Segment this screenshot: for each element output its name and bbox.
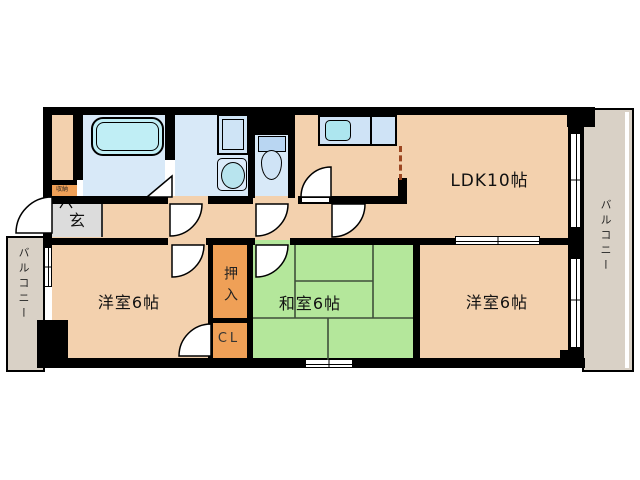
wall-toilet-kitchen: [288, 107, 295, 198]
door-entrance: [16, 197, 52, 233]
label-balcony-left: バルコニー: [15, 247, 31, 359]
wall-corner-bl: [37, 320, 68, 360]
duct-space: [52, 115, 73, 182]
window-japanese-bottom: [305, 359, 353, 368]
washing-machine-pan-icon: [217, 114, 249, 155]
floor-plan: LDK10帖 洋室6帖 和室6帖 洋室6帖 押入 CL 玄 収納 バルコニー バ…: [0, 0, 640, 480]
wall-rooms-top-c: [290, 238, 455, 245]
label-western1: 洋室6帖: [69, 289, 189, 313]
window-western2-balcony: [570, 258, 581, 348]
label-oshiire: 押入: [216, 254, 244, 320]
open-partition-dashed: [399, 146, 402, 180]
label-balcony-right: バルコニー: [597, 199, 613, 311]
window-ldk-balcony: [570, 133, 581, 228]
wall-duct-right: [73, 107, 83, 180]
wall-rooms-top-a: [45, 238, 168, 245]
door-leaf: [301, 197, 330, 203]
wall-corridor-top-a: [52, 196, 168, 204]
washbasin-icon: [217, 158, 247, 191]
label-genkan: 玄: [52, 207, 102, 231]
wall-japanese-western2: [413, 238, 420, 362]
wall-corner-br: [560, 350, 583, 362]
label-ldk: LDK10帖: [427, 166, 552, 191]
window-western1-left: [44, 247, 52, 287]
label-western2: 洋室6帖: [437, 289, 557, 313]
kitchen-sink-icon: [325, 120, 351, 141]
window-ldk-western2: [455, 236, 540, 245]
wall-wash-toilet: [248, 107, 255, 198]
label-cl: CL: [211, 331, 247, 346]
balcony-railing-gap: [625, 112, 629, 368]
counter-divider: [370, 117, 372, 144]
wall-stub-ldk: [398, 178, 407, 200]
label-storage: 収納: [47, 185, 77, 195]
label-japanese: 和室6帖: [250, 290, 370, 314]
wall-top: [43, 107, 595, 115]
wall-corridor-top-b: [208, 196, 253, 204]
wall-bath-wash: [165, 107, 175, 160]
bathtub-icon: [91, 117, 164, 156]
